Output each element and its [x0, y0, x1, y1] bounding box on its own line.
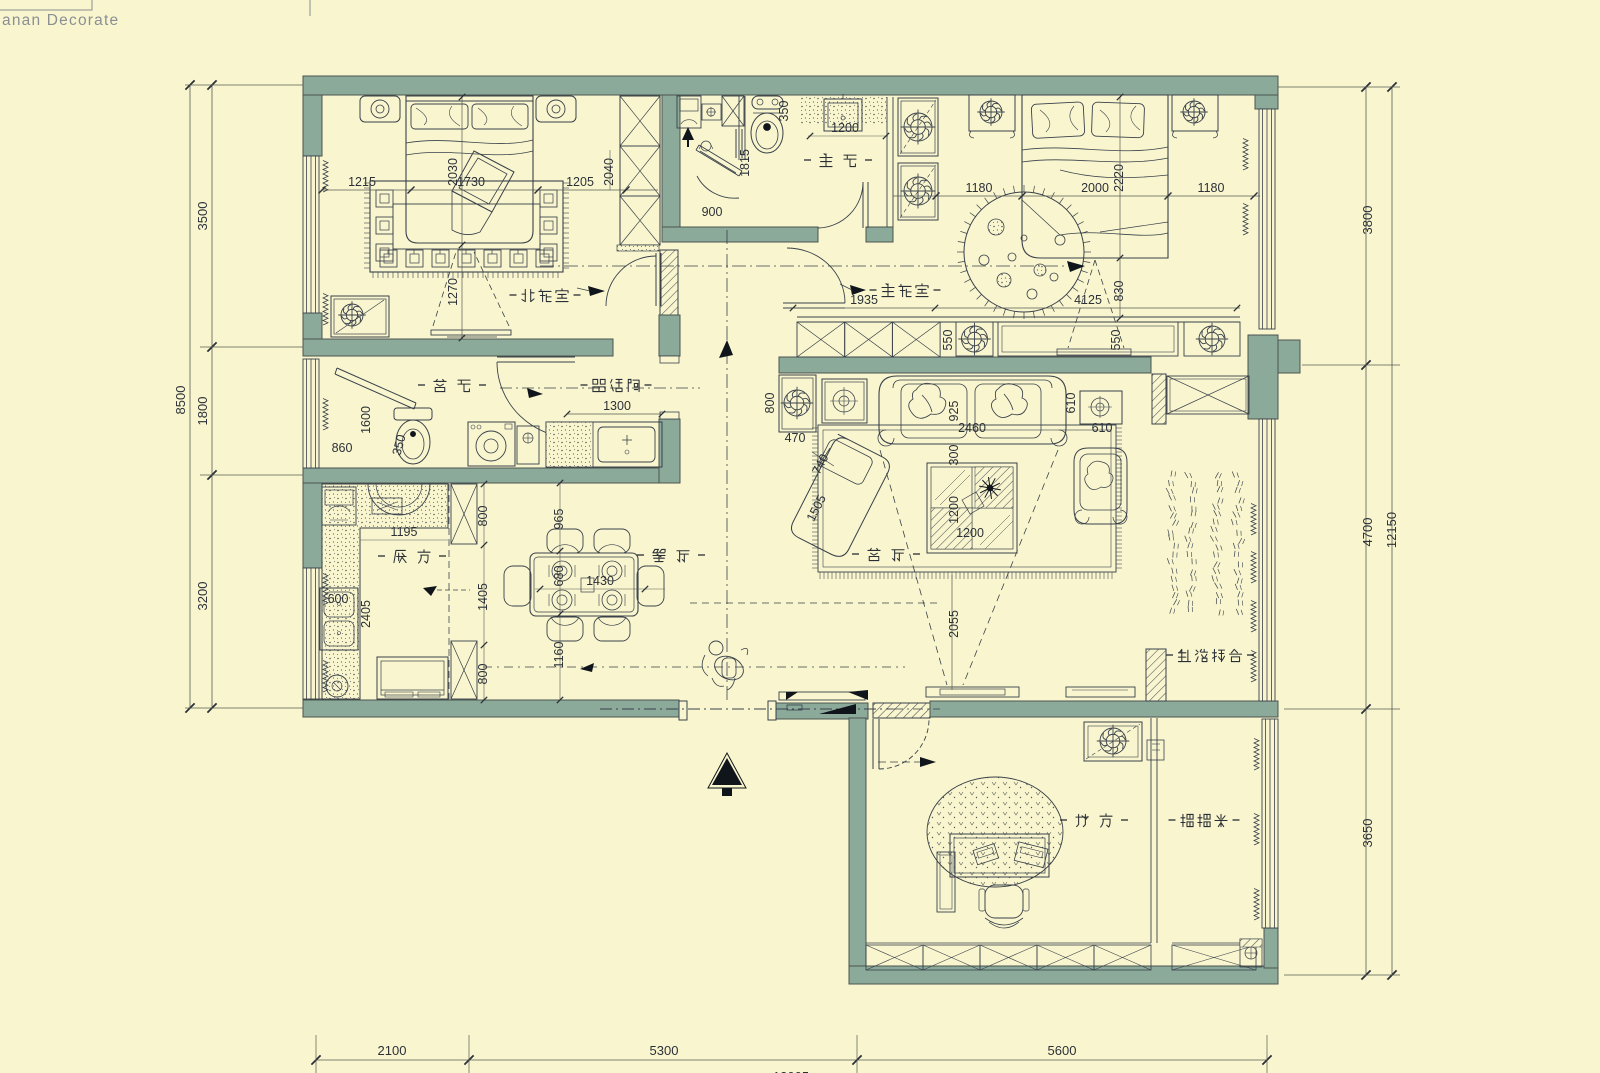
- svg-text:4700: 4700: [1360, 518, 1375, 547]
- svg-text:900: 900: [702, 205, 723, 219]
- svg-text:965: 965: [552, 509, 566, 530]
- svg-text:2100: 2100: [378, 1043, 407, 1058]
- svg-text:2040: 2040: [602, 158, 616, 186]
- svg-text:800: 800: [476, 506, 490, 527]
- svg-text:5600: 5600: [1048, 1043, 1077, 1058]
- svg-text:800: 800: [476, 664, 490, 685]
- svg-text:550: 550: [1109, 330, 1123, 351]
- svg-text:12150: 12150: [1384, 512, 1399, 548]
- svg-text:2030: 2030: [446, 158, 460, 186]
- svg-text:2000: 2000: [1081, 181, 1109, 195]
- svg-text:300: 300: [947, 445, 961, 466]
- svg-text:610: 610: [1092, 421, 1113, 435]
- svg-text:5300: 5300: [650, 1043, 679, 1058]
- svg-text:1815: 1815: [738, 149, 752, 177]
- svg-text:3200: 3200: [195, 582, 210, 611]
- svg-text:1430: 1430: [586, 574, 614, 588]
- svg-text:4125: 4125: [1074, 293, 1102, 307]
- svg-text:1300: 1300: [603, 399, 631, 413]
- svg-text:860: 860: [332, 441, 353, 455]
- svg-text:350: 350: [777, 101, 791, 122]
- svg-text:925: 925: [947, 401, 961, 422]
- svg-text:3800: 3800: [1360, 206, 1375, 235]
- svg-text:13005: 13005: [773, 1069, 809, 1073]
- svg-text:800: 800: [763, 393, 777, 414]
- svg-text:3500: 3500: [195, 202, 210, 231]
- svg-text:1405: 1405: [476, 583, 490, 611]
- svg-text:1215: 1215: [348, 175, 376, 189]
- svg-text:1600: 1600: [359, 406, 373, 434]
- svg-text:600: 600: [328, 592, 349, 606]
- svg-text:830: 830: [1112, 281, 1126, 302]
- svg-text:1180: 1180: [1198, 181, 1225, 195]
- svg-text:2220: 2220: [1112, 164, 1126, 192]
- svg-text:3650: 3650: [1360, 819, 1375, 848]
- svg-text:1200: 1200: [947, 496, 961, 524]
- svg-text:470: 470: [785, 431, 806, 445]
- svg-text:680: 680: [552, 566, 566, 587]
- svg-text:1730: 1730: [457, 175, 485, 189]
- svg-text:1180: 1180: [966, 181, 993, 195]
- svg-text:2460: 2460: [958, 421, 986, 435]
- svg-text:1935: 1935: [850, 293, 878, 307]
- svg-text:1205: 1205: [566, 175, 594, 189]
- svg-text:1200: 1200: [831, 121, 859, 135]
- svg-text:1195: 1195: [391, 525, 418, 539]
- svg-text:anan Decorate: anan Decorate: [2, 12, 119, 29]
- svg-text:2405: 2405: [359, 600, 373, 628]
- svg-text:550: 550: [941, 330, 955, 351]
- svg-text:2055: 2055: [947, 610, 961, 638]
- svg-text:1800: 1800: [195, 397, 210, 426]
- svg-text:8500: 8500: [173, 386, 188, 415]
- svg-text:1160: 1160: [552, 642, 566, 669]
- svg-text:1200: 1200: [956, 526, 984, 540]
- svg-text:1270: 1270: [446, 278, 460, 306]
- svg-text:610: 610: [1064, 393, 1078, 414]
